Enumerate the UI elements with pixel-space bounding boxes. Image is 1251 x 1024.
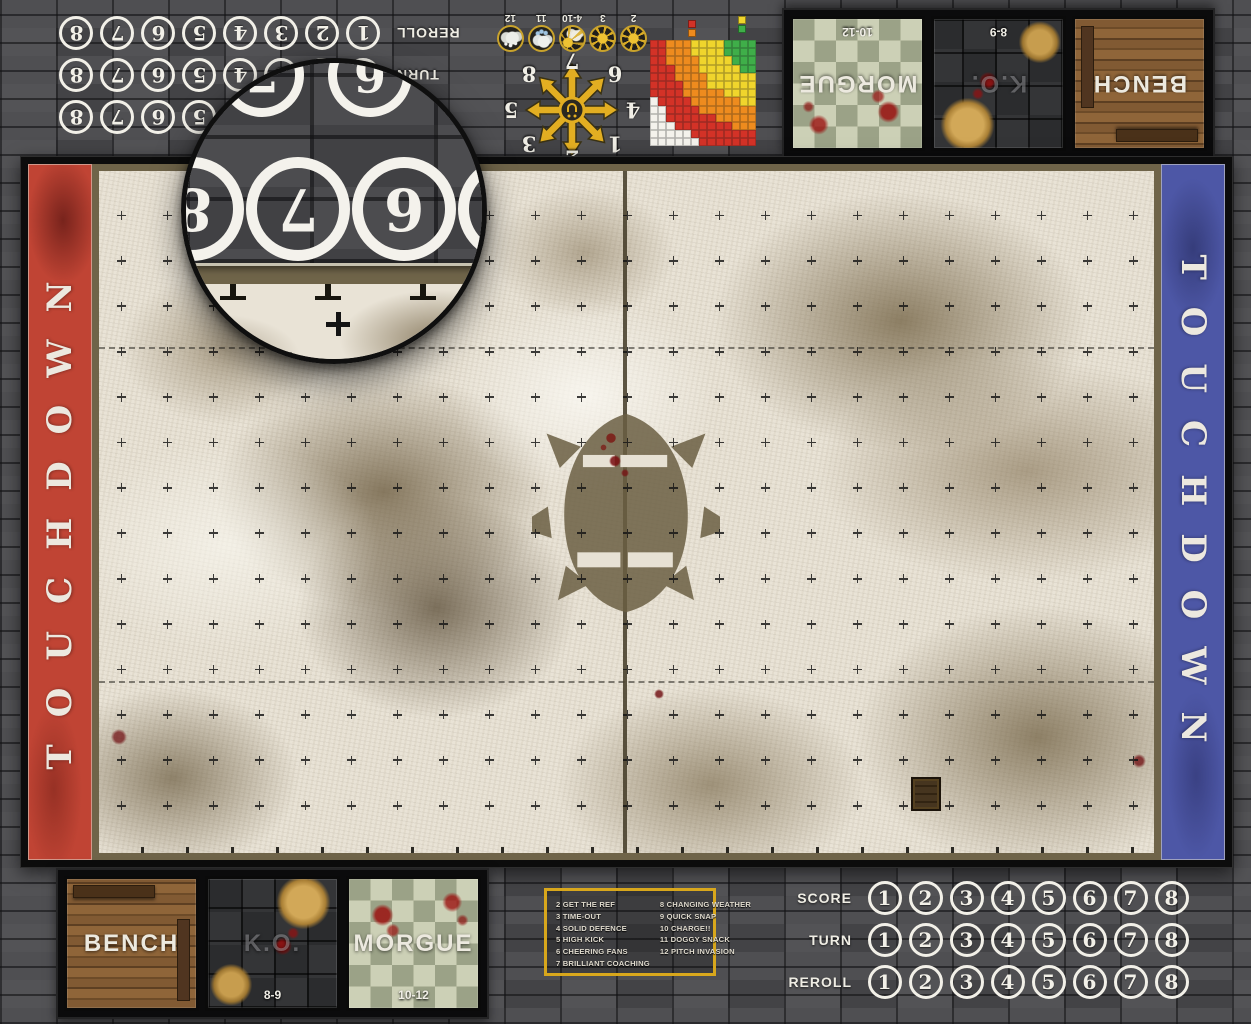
weather-range-label: 2 [631, 10, 637, 25]
grid-cross [807, 302, 816, 311]
grid-cross [209, 801, 218, 810]
range-cell [658, 56, 666, 64]
range-cell [691, 65, 699, 73]
range-cell [740, 48, 748, 56]
grid-cross [899, 483, 908, 492]
range-cell [716, 97, 724, 105]
track-number: 7 [101, 100, 135, 134]
dugout-box-bench: BENCH [64, 876, 199, 1011]
grid-cross [715, 302, 724, 311]
grid-cross [945, 756, 954, 765]
weather-cell: 4-10 [558, 10, 587, 52]
scatter-dial: 12345678 [496, 56, 648, 168]
grid-cross [715, 438, 724, 447]
kickoff-table: 2 GET THE REF3 TIME-OUT4 SOLID DEFENCE5 … [544, 888, 716, 976]
track-number: 8 [1155, 923, 1189, 957]
range-cell [748, 89, 756, 97]
grid-cross [1129, 393, 1138, 402]
range-cell [724, 114, 732, 122]
range-cell [724, 81, 732, 89]
range-cell [650, 73, 658, 81]
kickoff-event: 7 BRILLIANT COACHING [556, 958, 650, 970]
grid-cross [163, 302, 172, 311]
range-cell [650, 81, 658, 89]
range-cell [650, 138, 658, 146]
grid-cross [853, 620, 862, 629]
range-cell [740, 56, 748, 64]
grid-cross [117, 529, 126, 538]
grid-cross [853, 756, 862, 765]
range-cell [658, 65, 666, 73]
weather-cell: 2 [619, 10, 648, 52]
range-cell [683, 97, 691, 105]
grid-cross [1129, 211, 1138, 220]
grid-cross [669, 347, 678, 356]
track-number: 8 [60, 58, 94, 92]
grid-cross [669, 393, 678, 402]
track-label-score: SCORE [797, 891, 864, 905]
grid-cross [991, 665, 1000, 674]
grid-cross [209, 756, 218, 765]
grid-cross [761, 620, 770, 629]
range-cell [650, 48, 658, 56]
grid-cross [807, 574, 816, 583]
range-cell [707, 122, 715, 130]
end-zone-left: TOUCHDOWN [28, 164, 92, 860]
dugout-box-range: 8-9 [208, 988, 337, 1002]
track-number: 8 [60, 100, 94, 134]
grid-cross [301, 529, 310, 538]
grid-cross [301, 438, 310, 447]
grid-cross [715, 211, 724, 220]
grid-cross [669, 620, 678, 629]
range-cell [716, 65, 724, 73]
track-number: 3 [950, 881, 984, 915]
grid-cross [991, 211, 1000, 220]
range-cell [716, 81, 724, 89]
dugout-box-label: BENCH [1075, 72, 1204, 96]
range-cell [699, 106, 707, 114]
range-cell [748, 97, 756, 105]
range-cell [732, 73, 740, 81]
grid-cross [209, 529, 218, 538]
grid-cross [715, 529, 724, 538]
kickoff-event: 10 CHARGE!! [660, 923, 751, 935]
range-cell [666, 97, 674, 105]
dugout-box-label: MORGUE [793, 72, 922, 96]
snow-cloud-icon [497, 25, 524, 52]
tracker-top-center: 12345678 234-101112 [496, 10, 648, 168]
tracks-bottom-right: SCORE12345678TURN12345678REROLL12345678 [788, 877, 1192, 1003]
grid-cross [1083, 574, 1092, 583]
grid-cross [393, 710, 402, 719]
grid-cross [761, 256, 770, 265]
track-number: 4 [991, 965, 1025, 999]
range-cell [666, 130, 674, 138]
track-number: 8 [1155, 881, 1189, 915]
range-cell [707, 65, 715, 73]
dugout-box-bench: BENCH [1072, 16, 1207, 151]
grid-cross [531, 347, 540, 356]
grid-cross [117, 574, 126, 583]
dugout-box-morgue: MORGUE10-12 [346, 876, 481, 1011]
grid-cross [623, 756, 632, 765]
sun-icon [589, 25, 616, 52]
kickoff-event: 5 HIGH KICK [556, 934, 650, 946]
grid-cross [899, 393, 908, 402]
grid-cross [531, 665, 540, 674]
range-cell [732, 122, 740, 130]
range-cell [691, 89, 699, 97]
grid-cross [899, 801, 908, 810]
grid-cross [117, 756, 126, 765]
range-cell [691, 106, 699, 114]
range-cell [658, 130, 666, 138]
grid-cross [761, 483, 770, 492]
range-cell [732, 56, 740, 64]
grid-cross [209, 393, 218, 402]
grid-cross [715, 393, 724, 402]
kickoff-event: 4 SOLID DEFENCE [556, 923, 650, 935]
weather-track: 234-101112 [496, 10, 648, 52]
scatter-number: 6 [608, 62, 623, 87]
grid-cross [347, 574, 356, 583]
kickoff-event: 3 TIME-OUT [556, 911, 650, 923]
range-cell [748, 40, 756, 48]
range-cell [716, 114, 724, 122]
grid-cross [1083, 801, 1092, 810]
grid-cross [623, 529, 632, 538]
range-cell [691, 97, 699, 105]
track-number: 4 [991, 923, 1025, 957]
grid-cross [531, 574, 540, 583]
grid-cross [623, 483, 632, 492]
grid-cross [1129, 438, 1138, 447]
grid-cross [899, 665, 908, 674]
grid-cross [393, 620, 402, 629]
grid-cross [163, 801, 172, 810]
grid-cross [485, 438, 494, 447]
grid-cross [623, 393, 632, 402]
range-cell [658, 114, 666, 122]
grid-cross [807, 756, 816, 765]
weather-range-label: 12 [505, 10, 516, 25]
grid-cross [945, 211, 954, 220]
grid-cross [1129, 756, 1138, 765]
grid-cross [577, 620, 586, 629]
grid-cross [531, 801, 540, 810]
grid-cross [577, 393, 586, 402]
grid-cross [163, 211, 172, 220]
track-number: 7 [1114, 881, 1148, 915]
range-cell [650, 40, 658, 48]
grid-cross [853, 483, 862, 492]
grid-cross [1037, 756, 1046, 765]
grid-cross [255, 756, 264, 765]
grid-cross [899, 529, 908, 538]
range-cell [683, 65, 691, 73]
range-cell [732, 138, 740, 146]
weather-cell: 12 [496, 10, 525, 52]
grid-cross [485, 756, 494, 765]
track-number: 3 [265, 16, 299, 50]
range-legend-swatch [688, 20, 696, 28]
grid-cross [1083, 347, 1092, 356]
grid-cross [1083, 529, 1092, 538]
grid-cross [899, 302, 908, 311]
grid-cross [669, 665, 678, 674]
grid-cross [715, 347, 724, 356]
grid-cross [761, 393, 770, 402]
track-number: 4 [991, 881, 1025, 915]
range-cell [699, 89, 707, 97]
grid-cross [1037, 393, 1046, 402]
grid-cross [1083, 665, 1092, 674]
range-cell [650, 89, 658, 97]
grid-cross [255, 438, 264, 447]
range-cell [716, 122, 724, 130]
grid-cross [209, 710, 218, 719]
range-cell [658, 73, 666, 81]
range-cell [683, 40, 691, 48]
range-cell [707, 130, 715, 138]
grid-cross [117, 256, 126, 265]
range-cell [666, 40, 674, 48]
grid-cross [577, 665, 586, 674]
range-cell [748, 130, 756, 138]
grid-cross [163, 347, 172, 356]
scatter-number: 1 [608, 132, 623, 157]
grid-cross [458, 310, 475, 327]
range-cell [666, 106, 674, 114]
range-cell [691, 81, 699, 89]
track-number: 1 [868, 965, 902, 999]
range-cell [748, 122, 756, 130]
range-cell [691, 73, 699, 81]
grid-cross [715, 710, 724, 719]
grid-cross [485, 529, 494, 538]
grid-cross [807, 665, 816, 674]
grid-cross [1083, 256, 1092, 265]
range-cell [675, 138, 683, 146]
range-cell [650, 56, 658, 64]
range-cell [675, 106, 683, 114]
grid-cross [439, 620, 448, 629]
grid-cross [163, 756, 172, 765]
track-label-reroll: REROLL [788, 975, 864, 989]
grid-cross [1083, 393, 1092, 402]
grid-cross [623, 438, 632, 447]
grid-cross [1083, 211, 1092, 220]
grid-cross [899, 620, 908, 629]
range-cell [666, 114, 674, 122]
range-cell [707, 114, 715, 122]
blood-bowl-game-mat: { "banners": { "left": {"text": "TOUCHDO… [0, 0, 1251, 1024]
grid-cross [531, 483, 540, 492]
grid-cross [991, 620, 1000, 629]
range-cell [658, 81, 666, 89]
range-ruler-grid [650, 40, 758, 146]
grid-cross [255, 529, 264, 538]
grid-cross [1129, 302, 1138, 311]
grid-cross [531, 393, 540, 402]
scatter-number: 7 [565, 49, 580, 74]
grid-cross [255, 620, 264, 629]
grid-cross [991, 256, 1000, 265]
range-cell [732, 40, 740, 48]
grid-cross [531, 529, 540, 538]
grid-cross [807, 801, 816, 810]
grid-cross [669, 574, 678, 583]
grid-cross [531, 438, 540, 447]
dugout-box-label: K.O. [934, 72, 1063, 96]
range-cell [724, 122, 732, 130]
grid-cross [669, 256, 678, 265]
grid-cross [945, 256, 954, 265]
grid-cross [1037, 710, 1046, 719]
grid-cross [1037, 438, 1046, 447]
touchdown-banner-left: TOUCHDOWN [40, 254, 80, 769]
grid-cross [393, 483, 402, 492]
grid-cross [945, 710, 954, 719]
crate [911, 777, 941, 811]
grid-cross [853, 393, 862, 402]
grid-cross [531, 620, 540, 629]
track-number: 7 [101, 16, 135, 50]
grid-cross [715, 665, 724, 674]
grid-cross [761, 347, 770, 356]
grid-cross [1037, 620, 1046, 629]
grid-cross [531, 710, 540, 719]
range-cell [699, 73, 707, 81]
grid-cross [991, 438, 1000, 447]
grid-cross [761, 211, 770, 220]
grid-cross [853, 574, 862, 583]
range-cell [707, 73, 715, 81]
grid-cross [1129, 483, 1138, 492]
magnified-track-number: 7 [246, 157, 350, 261]
weather-range-label: 3 [600, 10, 606, 25]
range-cell [740, 89, 748, 97]
grid-cross [1083, 710, 1092, 719]
grid-cross [117, 302, 126, 311]
grid-cross [761, 665, 770, 674]
grid-cross [669, 302, 678, 311]
grid-cross [117, 438, 126, 447]
grid-cross [393, 393, 402, 402]
range-cell [716, 48, 724, 56]
grid-cross [209, 665, 218, 674]
grid-cross [163, 620, 172, 629]
grid-cross [623, 302, 632, 311]
grid-cross [1037, 256, 1046, 265]
grid-cross [991, 801, 1000, 810]
scatter-number: 5 [504, 98, 519, 123]
grid-cross [209, 438, 218, 447]
magnified-track-number: 5 [458, 157, 482, 261]
grid-cross [1037, 302, 1046, 311]
track-number: 2 [909, 923, 943, 957]
range-cell [675, 130, 683, 138]
range-cell [707, 40, 715, 48]
scatter-number: 3 [522, 132, 537, 157]
range-cell [707, 48, 715, 56]
grid-cross [117, 665, 126, 674]
track-number: 7 [101, 58, 135, 92]
grid-cross [991, 574, 1000, 583]
track-label-reroll: REROLL [384, 26, 460, 40]
grid-cross [1129, 801, 1138, 810]
track-number: 7 [1114, 923, 1148, 957]
grid-cross [393, 801, 402, 810]
range-ruler-legend [650, 18, 758, 40]
range-cell [716, 130, 724, 138]
grid-cross [163, 256, 172, 265]
range-cell [699, 81, 707, 89]
grid-cross [163, 665, 172, 674]
grid-cross [991, 756, 1000, 765]
grid-cross [1037, 574, 1046, 583]
range-cell [724, 65, 732, 73]
grid-cross [945, 483, 954, 492]
grid-cross [853, 302, 862, 311]
grid-cross [669, 756, 678, 765]
grid-cross [255, 574, 264, 583]
range-cell [740, 138, 748, 146]
grid-cross [1129, 529, 1138, 538]
grid-cross [807, 347, 816, 356]
range-cell [658, 138, 666, 146]
grid-cross [163, 710, 172, 719]
grid-cross [301, 665, 310, 674]
range-cell [724, 130, 732, 138]
pass-range-ruler [650, 18, 758, 146]
dugout-box-ko: K.O.8-9 [931, 16, 1066, 151]
grid-cross [715, 574, 724, 583]
range-cell [748, 65, 756, 73]
range-cell [683, 138, 691, 146]
track-number: 5 [1032, 881, 1066, 915]
range-cell [724, 106, 732, 114]
range-cell [732, 81, 740, 89]
grid-cross [439, 756, 448, 765]
range-legend-swatch [738, 16, 746, 24]
grid-cross [899, 211, 908, 220]
range-cell [724, 40, 732, 48]
grid-cross [531, 302, 540, 311]
track-number: 5 [1032, 965, 1066, 999]
grid-cross [1083, 302, 1092, 311]
range-cell [716, 106, 724, 114]
range-cell [666, 122, 674, 130]
grid-cross [255, 710, 264, 719]
range-cell [691, 40, 699, 48]
grid-cross [623, 620, 632, 629]
grid-cross [669, 211, 678, 220]
grid-cross [853, 347, 862, 356]
grid-cross [347, 620, 356, 629]
track-number: 6 [1073, 881, 1107, 915]
grid-cross [393, 665, 402, 674]
range-cell [683, 48, 691, 56]
grid-cross [991, 710, 1000, 719]
range-cell [716, 138, 724, 146]
range-cell [724, 56, 732, 64]
weather-range-label: 11 [536, 10, 547, 25]
track-number: 1 [868, 923, 902, 957]
range-cell [707, 106, 715, 114]
grid-cross [899, 438, 908, 447]
